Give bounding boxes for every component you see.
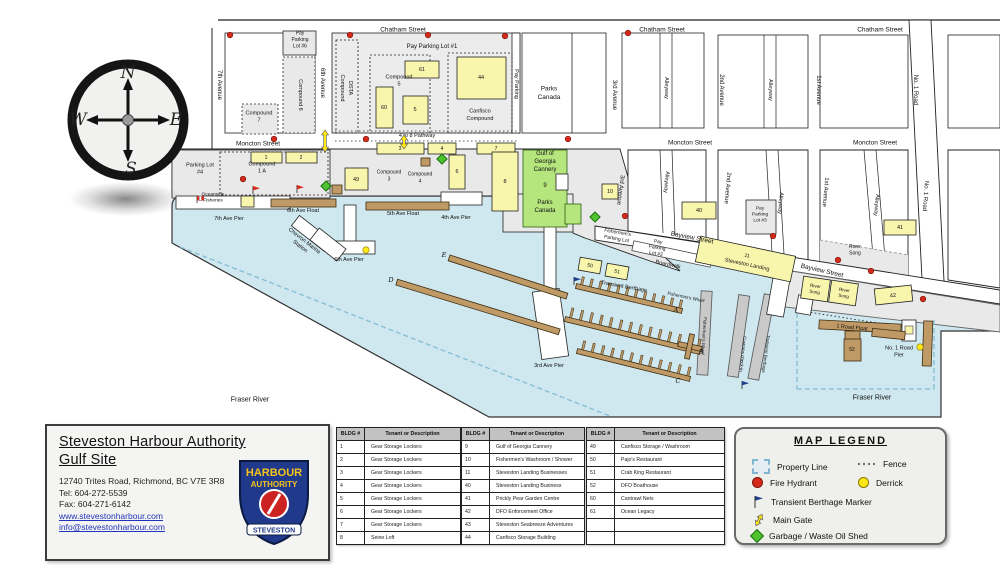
legend-label: Garbage / Waste Oil Shed bbox=[769, 531, 868, 541]
tenant-cell: Prickly Pear Garden Centre bbox=[490, 493, 585, 506]
map-label: 7th Avenue bbox=[216, 70, 222, 101]
waste-shed bbox=[421, 158, 430, 166]
bldg-number-cell: 60 bbox=[587, 493, 615, 506]
bldg-number-cell: 61 bbox=[587, 506, 615, 519]
legend-label: Fence bbox=[883, 459, 907, 469]
table-row: 41Prickly Pear Garden Centre bbox=[462, 493, 585, 506]
tenant-cell: Gear Storage Lockers bbox=[365, 493, 461, 506]
bldg-number-cell: 41 bbox=[462, 493, 490, 506]
map-label: 1st Avenue bbox=[815, 75, 821, 105]
map-label-line: Pay bbox=[756, 206, 765, 212]
fence-icon bbox=[858, 463, 860, 465]
map-label-line: Compound bbox=[386, 75, 413, 81]
map-label-line: Gulf of bbox=[536, 151, 554, 157]
table-row: 2Gear Storage Lockers bbox=[337, 454, 461, 467]
map-label-line: River bbox=[849, 244, 861, 250]
map-label: 1 bbox=[265, 155, 268, 161]
map-label: RiverSong bbox=[838, 287, 851, 299]
map-label: 6th Ave Float bbox=[287, 208, 319, 214]
map-label-line: Pier bbox=[894, 353, 904, 359]
map-label: 60 bbox=[381, 105, 387, 111]
info-card: Steveston Harbour Authority Gulf Site 12… bbox=[45, 424, 330, 561]
bldg-number-cell: 40 bbox=[462, 480, 490, 493]
bldg-number-cell: 9 bbox=[462, 441, 490, 454]
map-label: 3 bbox=[399, 146, 402, 152]
fire-hydrant-icon bbox=[347, 32, 353, 38]
table-row bbox=[587, 532, 725, 545]
tenant-cell: Steveston Seabreeze Adventures bbox=[490, 519, 585, 532]
map-label: 8 bbox=[503, 179, 506, 185]
table-row: 6Gear Storage Lockers bbox=[337, 506, 461, 519]
table-row: 60Cantrawl Nets bbox=[587, 493, 725, 506]
fire-hydrant-icon bbox=[752, 477, 763, 488]
legend-title: MAP LEGEND bbox=[736, 435, 945, 447]
bldg-number-cell bbox=[587, 519, 615, 532]
mid-block-3rd-2nd bbox=[628, 150, 706, 243]
table-row: 61Ocean Legacy bbox=[587, 506, 725, 519]
bldg-number-cell: 49 bbox=[587, 441, 615, 454]
oceanside-building bbox=[241, 196, 254, 207]
map-label: 3rd Ave Pier bbox=[534, 363, 564, 369]
map-label-line: Compound bbox=[467, 116, 494, 122]
tenant-cell: Gear Storage Lockers bbox=[365, 480, 461, 493]
tenant-cell: Canfisco Storage / Washroom bbox=[615, 441, 725, 454]
map-label: Compound 6 bbox=[297, 79, 303, 111]
tenant-cell: Steveston Landing Businesses bbox=[490, 467, 585, 480]
bldg-number-cell: 2 bbox=[337, 454, 365, 467]
legend-item-main-gate: Main Gate bbox=[752, 513, 812, 527]
map-label: Moncton Street bbox=[853, 140, 897, 147]
bldg-number-cell: 10 bbox=[462, 454, 490, 467]
bldg-number-cell: 42 bbox=[462, 506, 490, 519]
table-header: BLDG # bbox=[462, 428, 490, 441]
fire-hydrant-icon bbox=[920, 296, 926, 302]
garbage-shed-icon bbox=[750, 529, 764, 543]
map-label: Alleyway bbox=[663, 77, 669, 99]
map-label: C bbox=[676, 377, 681, 385]
cannery-notch bbox=[556, 174, 568, 190]
legend-item-berthage-flag: Transient Berthage Marker bbox=[752, 495, 872, 509]
float-6th-ave bbox=[271, 199, 336, 207]
tenant-cell bbox=[615, 532, 725, 545]
map-label: E bbox=[441, 251, 447, 259]
tenant-cell: Gear Storage Lockers bbox=[365, 467, 461, 480]
map-label: 2nd Avenue bbox=[718, 74, 724, 106]
table-row: 9Gulf of Georgia Cannery bbox=[462, 441, 585, 454]
no1-pier-hut bbox=[905, 326, 913, 334]
map-label-line: Canada bbox=[538, 94, 561, 101]
map-label-line: Lot #3 bbox=[753, 218, 767, 224]
fire-hydrant-icon bbox=[622, 213, 628, 219]
map-label: 7th Ave Pier bbox=[214, 216, 244, 222]
map-label-line: Compound bbox=[246, 111, 273, 117]
fire-hydrant-icon bbox=[240, 176, 246, 182]
map-label-line: 7 bbox=[257, 118, 260, 124]
map-label: 3rd Avenue bbox=[611, 80, 617, 111]
fire-hydrant-icon bbox=[770, 233, 776, 239]
fire-hydrant-icon bbox=[271, 136, 277, 142]
bldg-number-cell: 52 bbox=[587, 480, 615, 493]
table-header: Tenant or Description bbox=[615, 428, 725, 441]
block-1st-no1 bbox=[820, 35, 908, 128]
map-label: 42 bbox=[890, 293, 897, 300]
table-row: 42DFO Enforcement Office bbox=[462, 506, 585, 519]
badge-line1: HARBOUR bbox=[246, 467, 302, 479]
map-label-line: Cannery bbox=[534, 167, 557, 173]
waste-shed bbox=[332, 185, 342, 194]
legend-label: Property Line bbox=[777, 462, 828, 472]
mid-block-east bbox=[948, 150, 1000, 288]
derrick-icon bbox=[858, 477, 869, 488]
bldg-number-cell: 44 bbox=[462, 532, 490, 545]
tenant-cell: Canfisco Storage Building bbox=[490, 532, 585, 545]
compass-hub bbox=[123, 115, 134, 126]
bldg-number-cell: 5 bbox=[337, 493, 365, 506]
table-row: 43Steveston Seabreeze Adventures bbox=[462, 519, 585, 532]
tenant-cell: Pajo's Restaurant bbox=[615, 454, 725, 467]
tenant-cell: Gear Storage Lockers bbox=[365, 454, 461, 467]
legend-label: Fire Hydrant bbox=[770, 478, 817, 488]
map-legend: MAP LEGEND Property LineFenceFire Hydran… bbox=[734, 427, 947, 545]
table-header: Tenant or Description bbox=[365, 428, 461, 441]
map-label: 6th Ave Pier bbox=[334, 257, 364, 263]
fire-hydrant-icon bbox=[227, 32, 233, 38]
map-label-line: Oceanside bbox=[202, 192, 225, 198]
table-row: 5Gear Storage Lockers bbox=[337, 493, 461, 506]
map-label-line: Parks bbox=[537, 200, 552, 206]
map-label-line: #4 bbox=[197, 170, 203, 176]
map-label: 2 bbox=[300, 155, 303, 161]
bldg-number-cell: 43 bbox=[462, 519, 490, 532]
table-row: 44Canfisco Storage Building bbox=[462, 532, 585, 545]
legend-label: Transient Berthage Marker bbox=[771, 497, 872, 507]
bldg-number-cell: 4 bbox=[337, 480, 365, 493]
fire-hydrant-icon bbox=[565, 136, 571, 142]
map-label: ParksCanada bbox=[538, 85, 561, 101]
map-label: 44 bbox=[478, 75, 484, 81]
map-label: 4th Ave Pier bbox=[441, 215, 471, 221]
block-2nd-1st bbox=[718, 35, 808, 128]
tenant-cell: Ocean Legacy bbox=[615, 506, 725, 519]
map-label: CanfiscoCompound bbox=[467, 108, 494, 122]
table-row: 4Gear Storage Lockers bbox=[337, 480, 461, 493]
map-label: D bbox=[387, 276, 394, 284]
map-label: 5th Ave Float bbox=[387, 211, 419, 217]
map-label-line: Compound bbox=[377, 170, 402, 176]
bldg-number-cell: 51 bbox=[587, 467, 615, 480]
map-label: 41 bbox=[897, 225, 903, 231]
map-label-line: 1 A bbox=[258, 169, 266, 175]
map-label-line: DSTA bbox=[347, 81, 353, 96]
map-label: No. 1 Road bbox=[912, 75, 918, 105]
tenant-cell: Crab King Restaurant bbox=[615, 467, 725, 480]
map-label-line: Pay bbox=[296, 31, 305, 37]
map-label: B bbox=[698, 348, 704, 356]
derrick-icon bbox=[363, 247, 369, 253]
harbour-map-page: Chatham StreetChatham StreetChatham Stre… bbox=[0, 0, 1000, 575]
legend-item-garbage-shed: Garbage / Waste Oil Shed bbox=[752, 531, 868, 541]
table-row: 51Crab King Restaurant bbox=[587, 467, 725, 480]
tenant-cell: Gear Storage Lockers bbox=[365, 506, 461, 519]
table-row: 49Canfisco Storage / Washroom bbox=[587, 441, 725, 454]
map-label: 6 bbox=[455, 169, 458, 175]
site-title-line1: Steveston Harbour Authority bbox=[59, 434, 328, 450]
map-label: A bbox=[673, 306, 679, 314]
map-label-line: 5 bbox=[397, 82, 400, 88]
legend-label: Derrick bbox=[876, 478, 903, 488]
float-5th-ave bbox=[366, 202, 449, 210]
map-label: Fraser River bbox=[853, 395, 892, 402]
badge-line2: AUTHORITY bbox=[251, 480, 298, 489]
bldg-number-cell: 11 bbox=[462, 467, 490, 480]
table-row: 52DFO Boathouse bbox=[587, 480, 725, 493]
compass-w: W bbox=[69, 110, 88, 130]
map-label: Alleyway bbox=[767, 79, 773, 101]
bldg-number-cell: 3 bbox=[337, 467, 365, 480]
map-label: Chatham Street bbox=[380, 27, 426, 34]
map-label-line: Compound bbox=[249, 162, 276, 168]
compass-s: S bbox=[125, 159, 137, 179]
tenant-table-t3: BLDG #Tenant or Description49Canfisco St… bbox=[586, 427, 725, 545]
tenant-cell: Gear Storage Lockers bbox=[365, 519, 461, 532]
map-label: Pay Parking Lot #1 bbox=[407, 44, 458, 50]
derrick-icon bbox=[917, 344, 923, 350]
map-label: 5 bbox=[413, 107, 416, 113]
tenant-cell: Seine Loft bbox=[365, 532, 461, 545]
map-label: Chatham Street bbox=[639, 27, 685, 34]
map-label-line: Parking bbox=[752, 212, 769, 218]
legend-item-fence: Fence bbox=[858, 459, 907, 469]
map-label-line: Canfisco bbox=[469, 108, 490, 114]
compass-n: N bbox=[120, 63, 137, 83]
map-label-line: Song bbox=[849, 250, 861, 256]
map-label: 6th Avenue bbox=[319, 68, 325, 99]
legend-item-derrick: Derrick bbox=[858, 477, 903, 488]
map-label-line: Georgia bbox=[534, 159, 556, 165]
parks-canada-block bbox=[522, 33, 606, 133]
map-label: 7 bbox=[495, 146, 498, 152]
map-label: Gulf ofGeorgiaCannery bbox=[534, 151, 557, 173]
table-row: 10Fishermen's Washroom / Shower bbox=[462, 454, 585, 467]
bldg-number-cell: 50 bbox=[587, 454, 615, 467]
map-label: Pay Parking bbox=[513, 69, 519, 99]
fire-hydrant-icon bbox=[868, 268, 874, 274]
legend-label: Main Gate bbox=[773, 515, 812, 525]
map-label: RiverSong bbox=[849, 244, 861, 257]
bldg-number-cell: 7 bbox=[337, 519, 365, 532]
compass-e: E bbox=[169, 110, 183, 130]
table-row: 50Pajo's Restaurant bbox=[587, 454, 725, 467]
badge-banner-text: STEVESTON bbox=[253, 528, 295, 535]
table-header: BLDG # bbox=[587, 428, 615, 441]
map-label: RiverSong bbox=[809, 283, 822, 295]
pier-3rd-ave-ramp bbox=[544, 226, 556, 296]
compass-rose: N S W E bbox=[62, 50, 194, 190]
tenant-cell: Steveston Landing Business bbox=[490, 480, 585, 493]
tenant-cell: Gulf of Georgia Cannery bbox=[490, 441, 585, 454]
harbour-authority-badge: HARBOUR AUTHORITY STEVESTON bbox=[234, 456, 314, 548]
map-label-line: 3 bbox=[388, 177, 391, 183]
transient-berthage-marker-icon bbox=[752, 495, 764, 509]
main-gate-icon bbox=[752, 513, 766, 527]
map-label: Moncton Street bbox=[668, 140, 712, 147]
bldg-number-cell bbox=[587, 532, 615, 545]
canada-flag-icon bbox=[202, 196, 204, 201]
tenant-table-t1: BLDG #Tenant or Description1Gear Storage… bbox=[336, 427, 461, 545]
fire-hydrant-icon bbox=[835, 257, 841, 263]
fire-hydrant-icon bbox=[502, 33, 508, 39]
map-label: 4 bbox=[441, 146, 444, 152]
legend-item-property-line: Property Line bbox=[752, 459, 828, 474]
table-header: Tenant or Description bbox=[490, 428, 585, 441]
tenant-cell: Fishermen's Washroom / Shower bbox=[490, 454, 585, 467]
tenant-cell bbox=[615, 519, 725, 532]
map-label-line: Lot #6 bbox=[293, 44, 307, 50]
map-label-line: Compound bbox=[408, 172, 433, 178]
pier-no1-road bbox=[922, 321, 933, 366]
map-label-line: No. 1 Road bbox=[885, 346, 913, 352]
table-row: 11Steveston Landing Businesses bbox=[462, 467, 585, 480]
block-east bbox=[948, 35, 1000, 128]
table-row: 40Steveston Landing Business bbox=[462, 480, 585, 493]
map-label: 10 bbox=[607, 189, 613, 195]
block-3rd-2nd bbox=[622, 33, 704, 128]
table-row: 8Seine Loft bbox=[337, 532, 461, 545]
map-label-line: Fisheries bbox=[203, 198, 223, 204]
table-header: BLDG # bbox=[337, 428, 365, 441]
map-label: 49 bbox=[353, 177, 359, 183]
map-label: Fraser River bbox=[231, 397, 270, 404]
bldg-number-cell: 6 bbox=[337, 506, 365, 519]
canada-flag-icon bbox=[199, 196, 201, 201]
no1-road-street bbox=[909, 20, 945, 301]
tenant-cell: DFO Boathouse bbox=[615, 480, 725, 493]
map-label-line: Parks bbox=[541, 85, 558, 92]
map-label: Chatham Street bbox=[857, 27, 903, 34]
fire-hydrant-icon bbox=[625, 30, 631, 36]
tenant-cell: DFO Enforcement Office bbox=[490, 506, 585, 519]
table-row: 3Gear Storage Lockers bbox=[337, 467, 461, 480]
map-label: 40 bbox=[696, 208, 702, 214]
map-label-line: Canada bbox=[534, 208, 556, 214]
tenant-table-t2: BLDG #Tenant or Description9Gulf of Geor… bbox=[461, 427, 585, 545]
tenant-cell: Gear Storage Lockers bbox=[365, 441, 461, 454]
table-row bbox=[587, 519, 725, 532]
bldg-number-cell: 8 bbox=[337, 532, 365, 545]
gulf-of-georgia-cannery bbox=[565, 204, 581, 224]
map-label-line: Parking bbox=[292, 37, 309, 43]
fire-hydrant-icon bbox=[425, 32, 431, 38]
bldg-number-cell: 1 bbox=[337, 441, 365, 454]
table-row: 1Gear Storage Lockers bbox=[337, 441, 461, 454]
map-label-line: 4 bbox=[419, 179, 422, 185]
map-label-line: Compound bbox=[339, 75, 345, 102]
map-label: 61 bbox=[419, 67, 425, 73]
map-label: 52 bbox=[849, 347, 855, 353]
tenant-cell: Cantrawl Nets bbox=[615, 493, 725, 506]
legend-item-fire-hydrant: Fire Hydrant bbox=[752, 477, 817, 488]
table-row: 7Gear Storage Lockers bbox=[337, 519, 461, 532]
property-line-icon bbox=[752, 459, 770, 474]
fire-hydrant-icon bbox=[363, 136, 369, 142]
main-gate-icon bbox=[322, 130, 329, 152]
